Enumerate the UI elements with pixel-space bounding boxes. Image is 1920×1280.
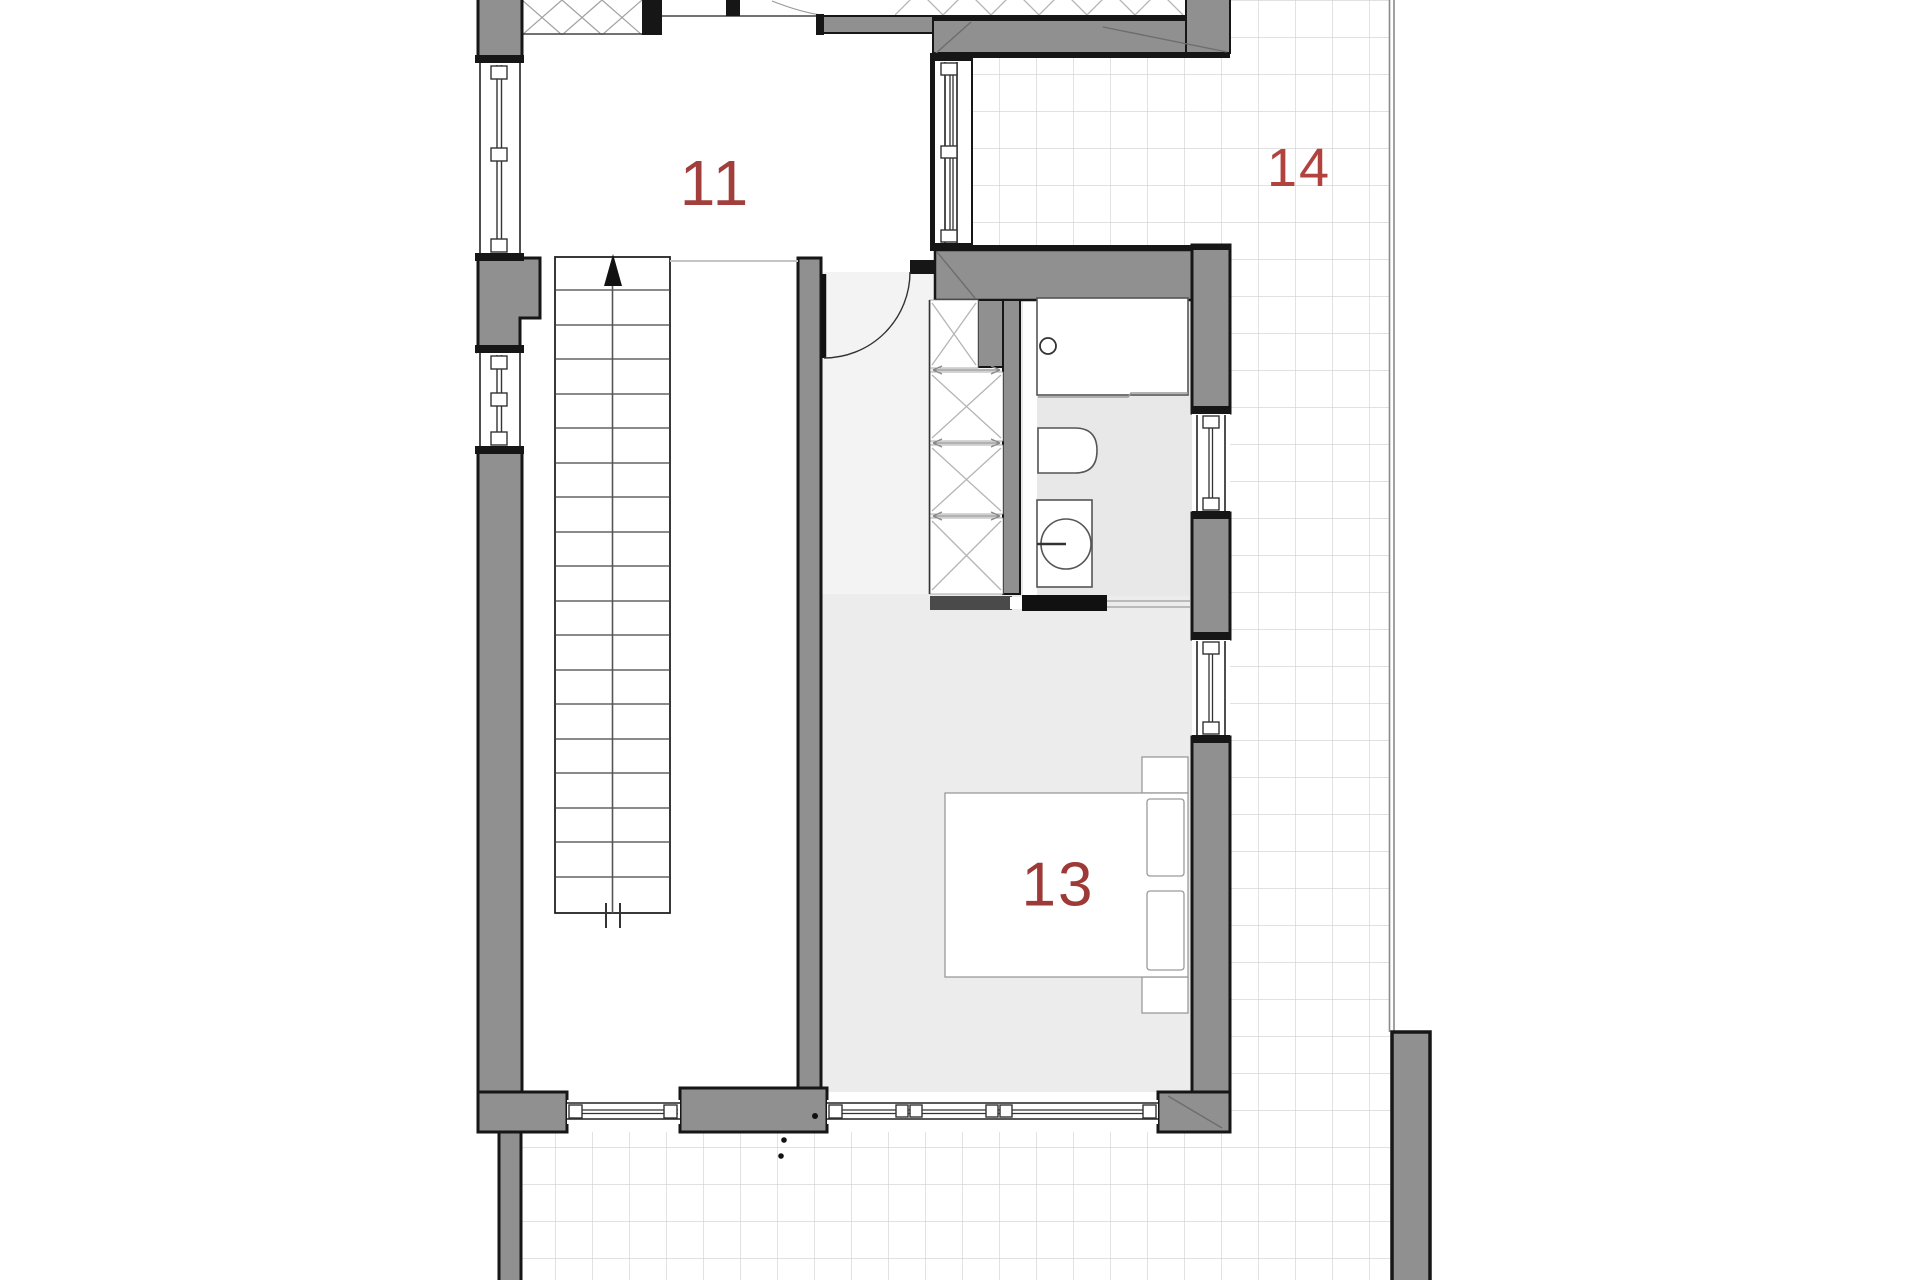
door-swing-arc-top bbox=[772, 1, 821, 15]
window-west-2 bbox=[475, 345, 524, 454]
room-label-13: 13 bbox=[1022, 850, 1095, 921]
west-wall-top bbox=[478, 0, 522, 57]
west-wall-block bbox=[478, 258, 540, 352]
terrace-14-pocket-tiles bbox=[973, 58, 1230, 246]
window-south-2 bbox=[827, 1100, 1158, 1124]
sink-vanity bbox=[1037, 500, 1092, 587]
closet-niche bbox=[978, 300, 1003, 367]
top-partial-rooms bbox=[642, 0, 821, 35]
east-wall-seg2 bbox=[1192, 513, 1230, 639]
window-east-room11 bbox=[930, 53, 973, 251]
closet-east-wall bbox=[1003, 300, 1020, 594]
southeast-site-wall bbox=[1392, 1032, 1430, 1280]
pillow bbox=[1147, 799, 1184, 876]
nightstand bbox=[1142, 757, 1188, 793]
south-wall-center-block bbox=[680, 1088, 827, 1132]
window-east-bathroom bbox=[1192, 406, 1230, 519]
pillow bbox=[1147, 891, 1184, 970]
wall-stub bbox=[726, 0, 740, 16]
west-terrace-wall bbox=[499, 1132, 521, 1280]
nightstand bbox=[1142, 977, 1188, 1013]
bottom-terrace-tiles bbox=[522, 1132, 1390, 1280]
toilet-icon bbox=[1038, 428, 1097, 473]
floor-plan: 11 13 14 bbox=[0, 0, 1920, 1280]
window-south-1 bbox=[567, 1100, 680, 1124]
roof-truss-hatch bbox=[522, 0, 642, 35]
window-east-room13 bbox=[1192, 632, 1230, 743]
north-wall-band bbox=[823, 16, 933, 33]
stairs bbox=[555, 254, 798, 928]
window-west-1 bbox=[475, 55, 524, 261]
shower-tray bbox=[1037, 298, 1188, 397]
door-jamb-stub bbox=[910, 260, 935, 274]
bathroom-door-track bbox=[1023, 300, 1037, 596]
shower-screen bbox=[1022, 595, 1107, 611]
east-wall-seg1 bbox=[1192, 245, 1230, 413]
west-wall-long bbox=[478, 448, 522, 1092]
southwest-wall-block bbox=[478, 1092, 567, 1132]
bathroom-south-partition bbox=[930, 596, 1012, 610]
middle-wall bbox=[798, 258, 821, 1090]
room-label-14: 14 bbox=[1267, 137, 1331, 199]
east-wall-seg3 bbox=[1192, 737, 1230, 1092]
wall-stub bbox=[642, 0, 662, 35]
room-label-11: 11 bbox=[680, 146, 750, 220]
bathroom-north-wall bbox=[935, 250, 1230, 300]
floor-plan-drawing bbox=[0, 0, 1920, 1280]
shower-drain-icon bbox=[1040, 338, 1056, 354]
top-closet bbox=[895, 0, 1230, 20]
